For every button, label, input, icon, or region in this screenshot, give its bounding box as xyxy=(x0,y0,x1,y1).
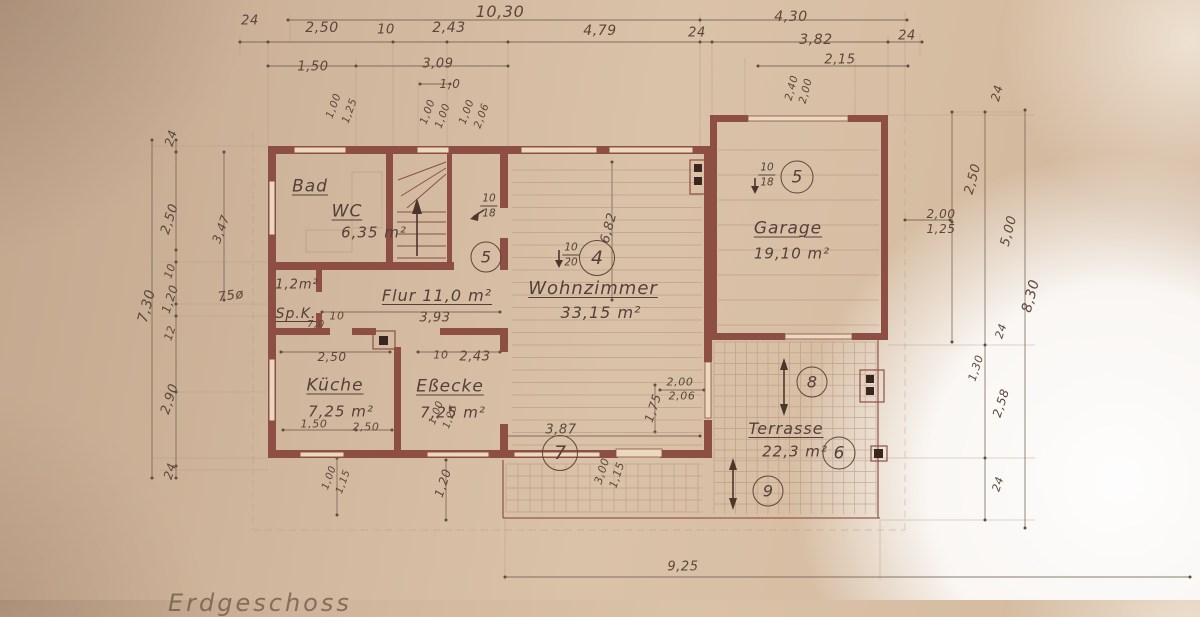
dimension-label: 24 xyxy=(989,83,1005,102)
floorplan-photo: { "plan": { "floor_label": "Erdgeschoss"… xyxy=(0,0,1200,600)
dimension-label: 5,00 xyxy=(999,214,1020,248)
position-number-marker: 4 xyxy=(579,240,615,276)
dimension-label: 2,50 xyxy=(353,422,380,433)
dimension-label: 2,50 xyxy=(159,202,181,236)
floor-title: Erdgeschoss xyxy=(168,589,352,617)
dimension-label: 7,30 xyxy=(136,288,158,324)
dimension-label: 10 xyxy=(433,350,448,361)
room-label: Flur 11,0 m² xyxy=(382,288,492,304)
dimension-label: 1,15 xyxy=(335,469,353,496)
dimension-label: 1,25 xyxy=(341,97,360,125)
dimension-label: 2,00 xyxy=(926,208,955,220)
dimension-label: 2,90 xyxy=(159,382,181,416)
dimension-label: 2,15 xyxy=(824,54,855,67)
room-label: Sp.K. xyxy=(276,307,317,321)
dimension-label: 3,93 xyxy=(419,312,450,325)
dimension-label: 24 xyxy=(163,128,180,147)
position-number-marker: 6 xyxy=(823,437,856,470)
room-label: Bad xyxy=(292,179,328,196)
position-number-marker: 8 xyxy=(797,367,828,398)
dimension-label: 10 xyxy=(329,311,344,322)
dimension-label: 8,30 xyxy=(1020,278,1042,314)
dimension-label: 2,00 xyxy=(798,77,815,105)
dimension-label: 24 xyxy=(898,30,916,43)
dimension-label: 1,50 xyxy=(297,61,328,74)
dimension-label: 2,06 xyxy=(669,391,696,402)
dimension-label: 75ø xyxy=(217,288,245,305)
dimension-label: 2,50 xyxy=(963,162,984,196)
step-ratio-label: 1018 xyxy=(480,194,497,219)
dimension-label: 12 xyxy=(162,324,177,342)
room-label: Terrasse xyxy=(748,421,823,437)
dimension-label: 10 xyxy=(377,24,395,37)
room-label: 22,3 m² xyxy=(762,445,828,460)
room-label: 19,10 m² xyxy=(754,247,830,262)
dimension-label: 9,25 xyxy=(667,561,698,574)
dimension-label: 2,06 xyxy=(473,102,492,130)
room-label: 33,15 m² xyxy=(561,305,642,321)
position-number-marker: 5 xyxy=(471,242,502,273)
dimension-label: 4,79 xyxy=(583,24,617,38)
dimension-label: 1,75 xyxy=(643,392,663,423)
dimension-label: 1,20 xyxy=(433,467,453,498)
dimension-label: 2,50 xyxy=(305,21,339,35)
position-number-marker: 7 xyxy=(542,435,578,471)
dimension-label: 2,50 xyxy=(317,351,346,363)
dimension-label: 1,30 xyxy=(967,354,986,383)
blueprint-sheet: Erdgeschoss 10,30242,50102,434,79244,303… xyxy=(0,0,1200,600)
dimension-label: 1,20 xyxy=(160,283,180,314)
dimension-label: 2,00 xyxy=(667,377,694,388)
dimension-label: 1,00 xyxy=(434,102,453,130)
dimension-label: 3,82 xyxy=(799,33,833,47)
dimension-label: 10,30 xyxy=(476,4,525,20)
dimension-label: 24 xyxy=(162,461,179,480)
step-ratio-label: 1018 xyxy=(758,163,775,188)
position-number-marker: 5 xyxy=(781,161,814,194)
dimension-label: 24 xyxy=(993,322,1008,340)
step-ratio-label: 1020 xyxy=(562,243,579,268)
text-layer: Erdgeschoss 10,30242,50102,434,79244,303… xyxy=(0,0,1200,600)
dimension-label: 2,43 xyxy=(459,351,490,364)
room-label: 7,25 m² xyxy=(308,405,374,420)
dimension-label: 2,58 xyxy=(991,387,1011,418)
room-label: Garage xyxy=(754,221,822,238)
room-label: 1,2m² xyxy=(275,279,319,292)
dimension-label: 10 xyxy=(162,262,177,280)
dimension-label: 24 xyxy=(990,475,1005,493)
room-label: Eßecke xyxy=(416,379,484,396)
room-label: Wohnzimmer xyxy=(528,280,658,298)
dimension-label: 2,43 xyxy=(432,21,466,35)
dimension-label: 1,0 xyxy=(440,78,461,90)
room-label: 7,25 m² xyxy=(420,406,486,421)
dimension-label: 3,47 xyxy=(210,213,231,244)
room-label: 6,35 m² xyxy=(341,226,407,241)
position-number-marker: 9 xyxy=(753,476,784,507)
room-label: Küche xyxy=(306,378,363,395)
room-label: WC xyxy=(332,204,363,221)
dimension-label: 1,25 xyxy=(926,223,955,235)
dimension-label: 4,30 xyxy=(774,10,808,24)
dimension-label: 24 xyxy=(688,27,706,40)
dimension-label: 24 xyxy=(241,15,259,28)
dimension-label: 3,09 xyxy=(422,58,453,71)
